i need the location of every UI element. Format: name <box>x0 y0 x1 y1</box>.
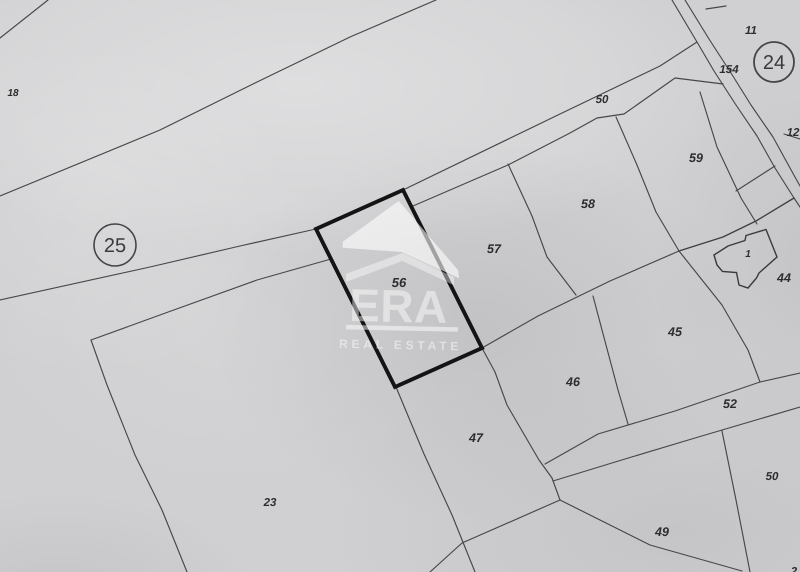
svg-text:24: 24 <box>763 52 785 74</box>
svg-text:49: 49 <box>654 525 669 539</box>
svg-text:44: 44 <box>776 271 791 285</box>
svg-text:52: 52 <box>723 397 737 411</box>
svg-text:REAL ESTATE: REAL ESTATE <box>339 337 462 354</box>
svg-text:154: 154 <box>719 64 739 76</box>
svg-text:50: 50 <box>766 471 779 483</box>
svg-text:25: 25 <box>104 235 126 257</box>
svg-text:50: 50 <box>596 94 609 106</box>
svg-text:23: 23 <box>263 497 277 509</box>
svg-text:18: 18 <box>7 88 19 99</box>
svg-text:ERA: ERA <box>349 279 449 333</box>
svg-text:1: 1 <box>745 249 751 260</box>
svg-text:59: 59 <box>689 151 703 165</box>
svg-text:2: 2 <box>790 566 798 572</box>
svg-text:58: 58 <box>581 197 595 211</box>
svg-text:12: 12 <box>787 127 800 139</box>
svg-text:57: 57 <box>487 242 502 256</box>
svg-text:47: 47 <box>468 431 484 445</box>
svg-text:45: 45 <box>667 325 683 339</box>
svg-text:11: 11 <box>745 25 757 37</box>
svg-text:46: 46 <box>565 375 581 389</box>
